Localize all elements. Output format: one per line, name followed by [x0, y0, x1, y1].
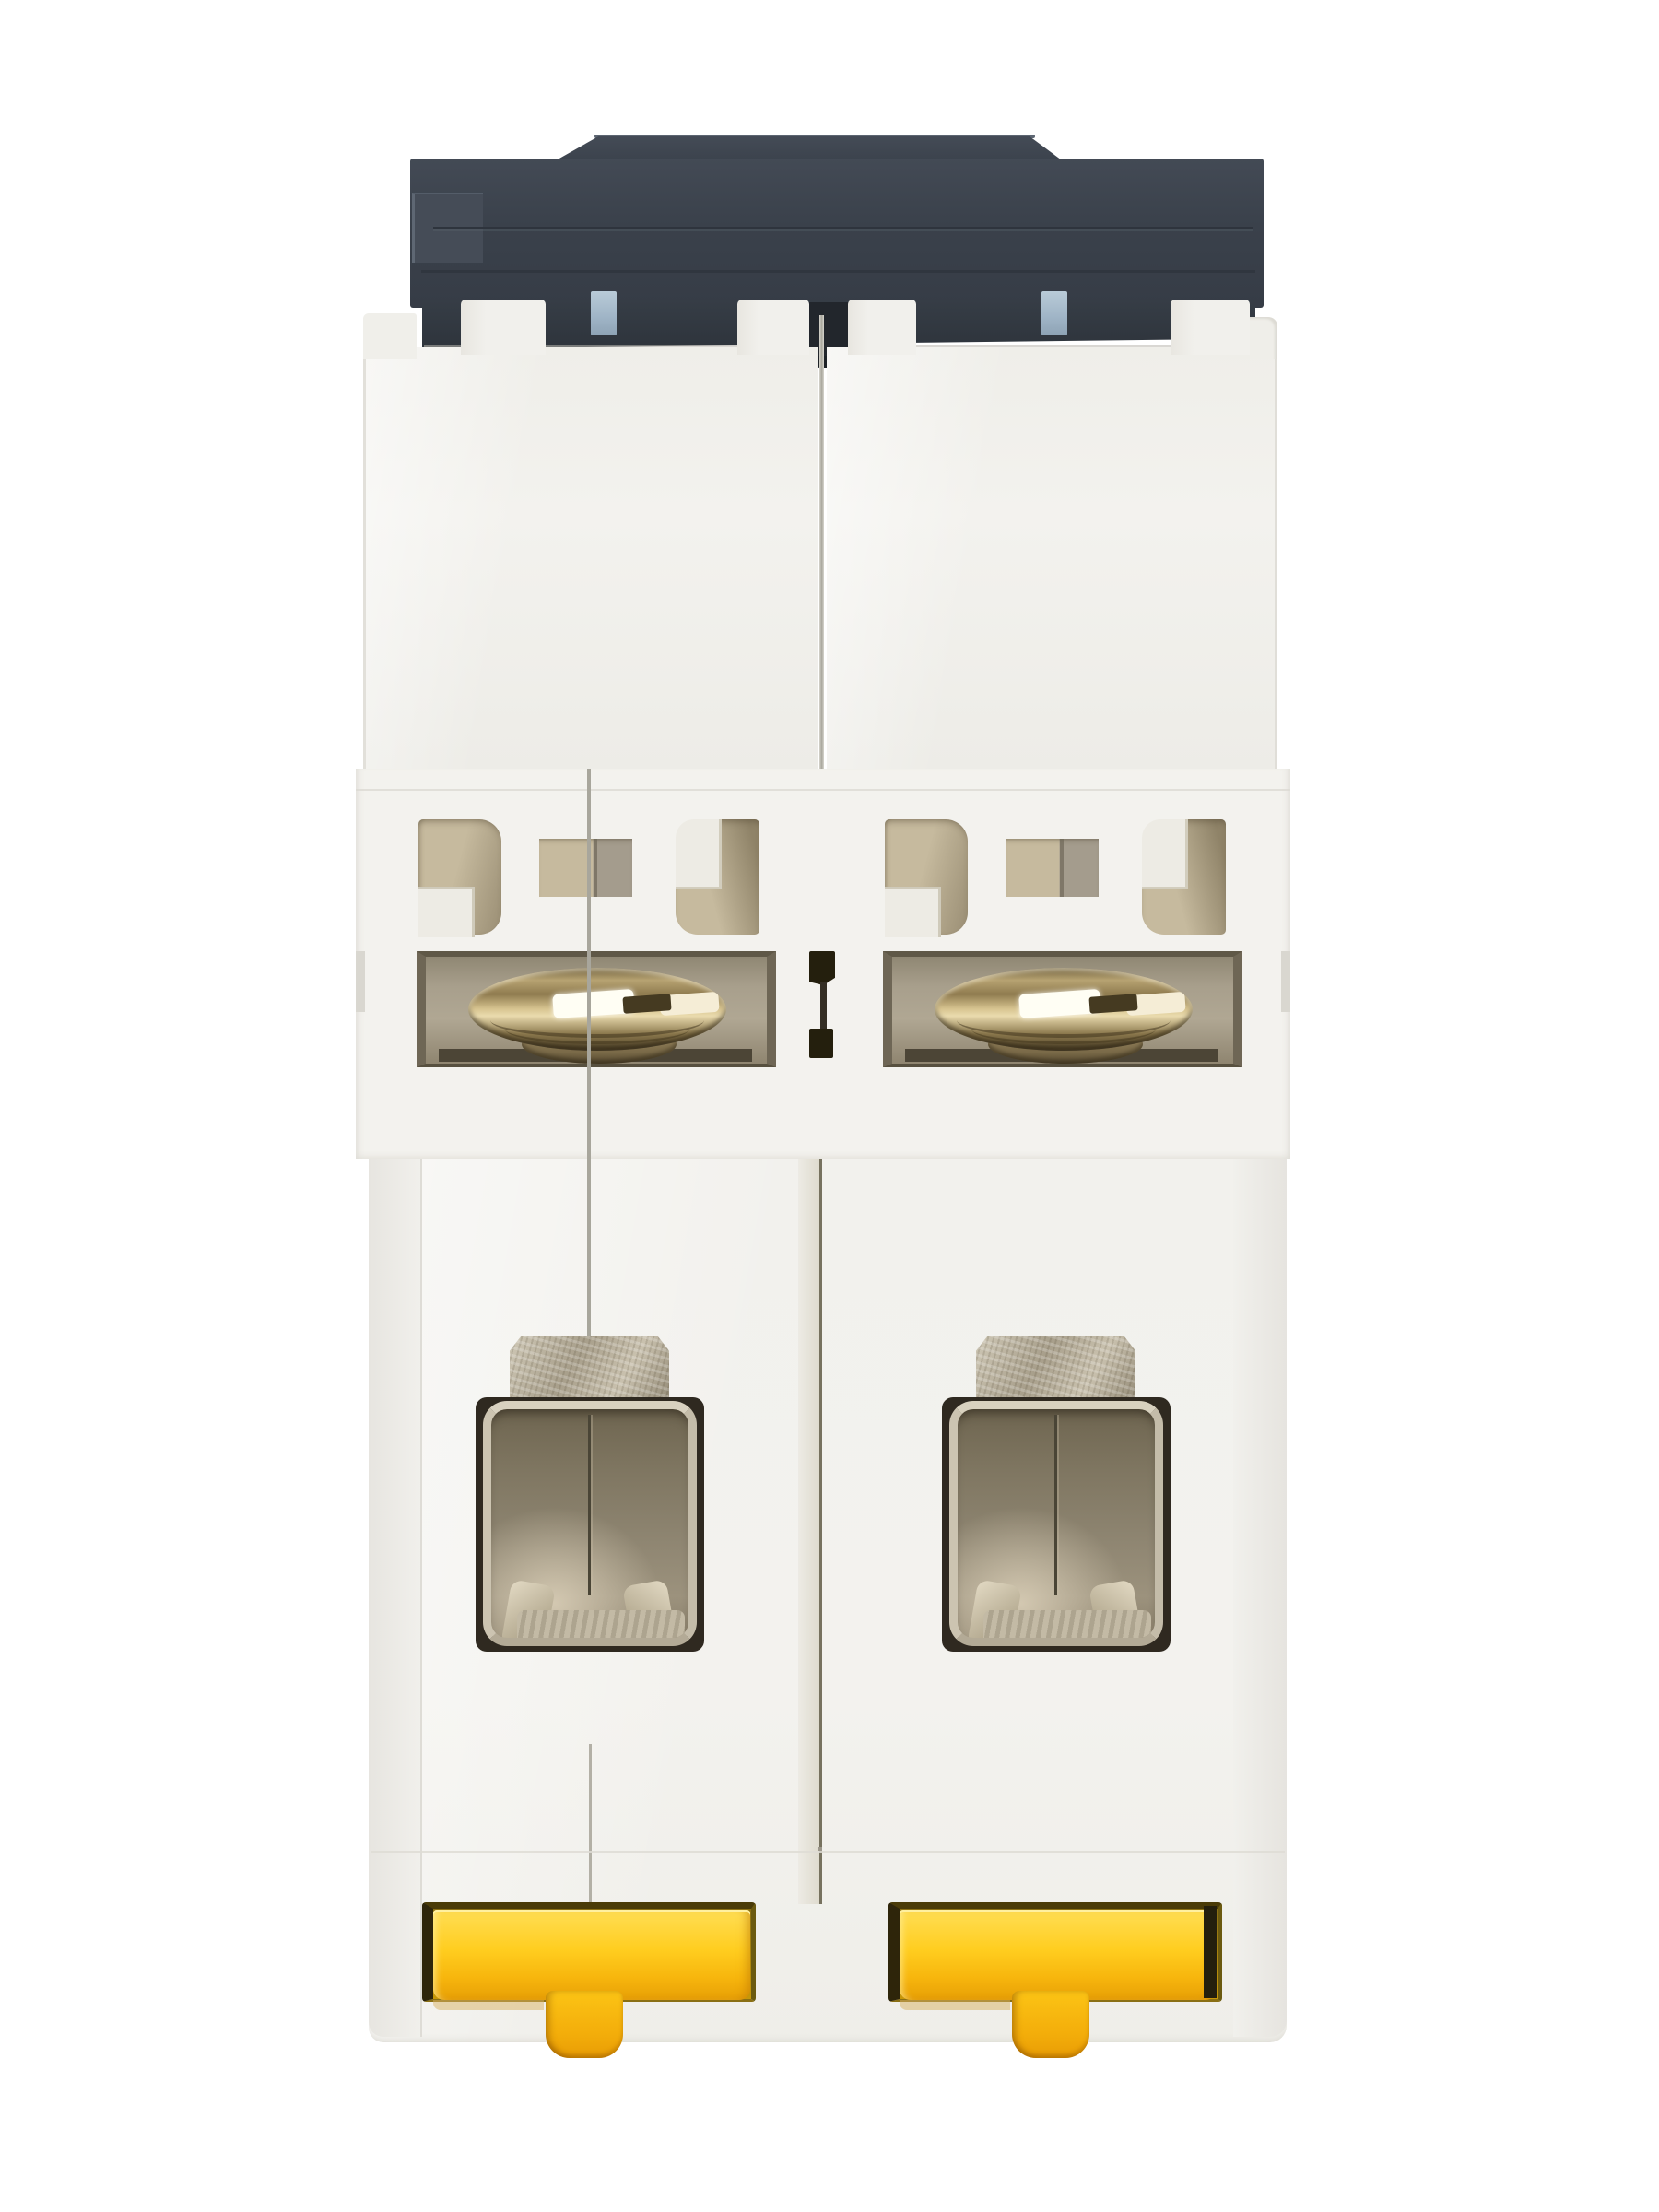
- lower-body-left-face: [369, 1159, 422, 2037]
- din-clip-bar: [900, 1910, 1217, 2000]
- clip-recess-dark-end: [1204, 1906, 1217, 1998]
- upper-body-left-shoulder: [363, 313, 417, 359]
- din-rail-clip-pole-2: [466, 0, 1659, 2212]
- clip-under-shadow: [900, 2000, 1010, 2010]
- circuit-breaker: [0, 0, 1659, 2212]
- product-photo-canvas: [0, 0, 1659, 2212]
- band-edge-notch-left: [356, 951, 365, 1012]
- din-clip-pull-tab: [1012, 1991, 1089, 2058]
